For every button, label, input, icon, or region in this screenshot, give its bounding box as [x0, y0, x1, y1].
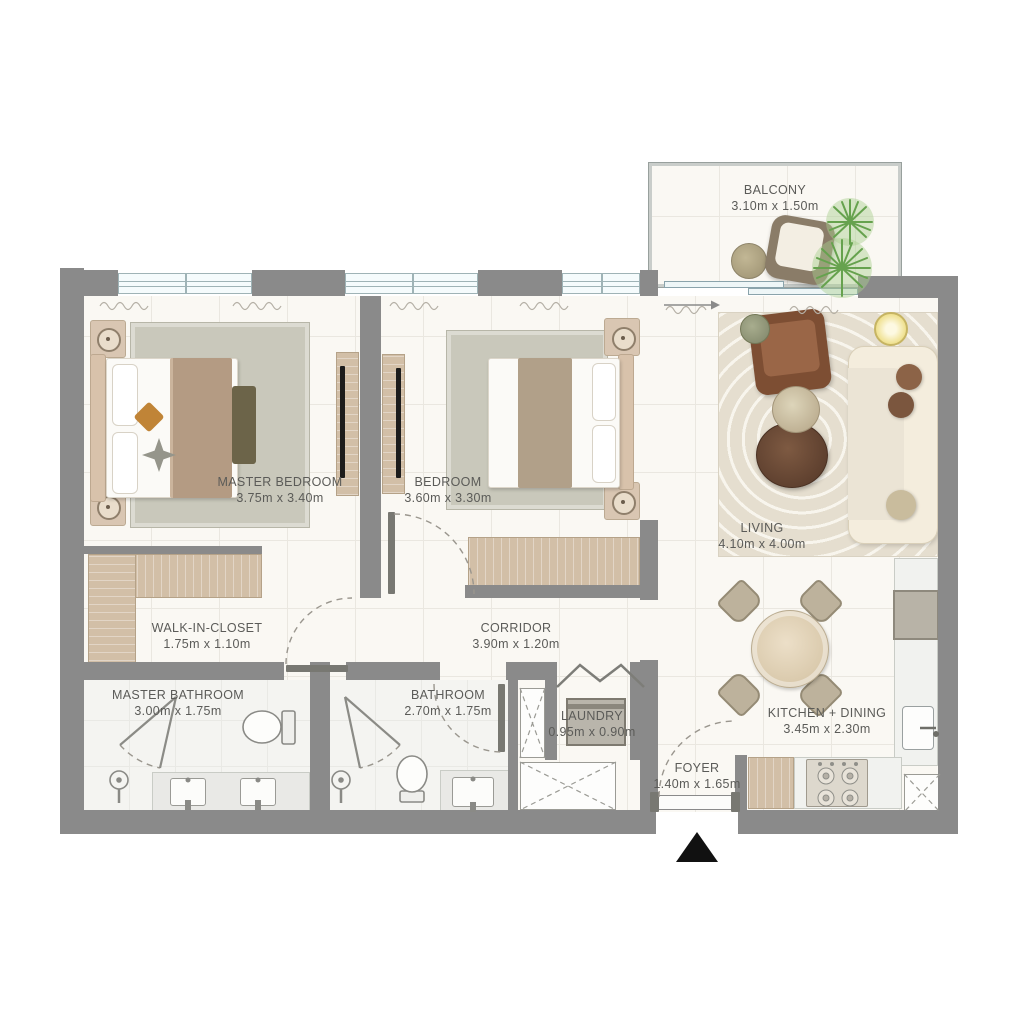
wall	[858, 276, 958, 298]
sink	[170, 778, 206, 806]
room-name: LIVING	[718, 520, 805, 536]
room-dims: 0.95m x 0.90m	[548, 724, 635, 740]
door-leaf	[498, 684, 505, 752]
room-dims: 2.70m x 1.75m	[404, 703, 491, 719]
wall	[60, 268, 84, 834]
wall	[378, 662, 440, 680]
room-name: MASTER BATHROOM	[112, 687, 244, 703]
label-corridor: CORRIDOR 3.90m x 1.20m	[472, 620, 559, 652]
label-foyer: FOYER 1.40m x 1.65m	[653, 760, 740, 792]
wall	[508, 680, 518, 812]
room-dims: 3.75m x 3.40m	[217, 490, 342, 506]
balcony-sliding-door	[748, 288, 858, 295]
dining-table	[751, 610, 829, 688]
closet-shelf-vertical	[88, 554, 136, 678]
master-bed-headboard	[90, 354, 106, 502]
wall	[252, 270, 345, 296]
pillow	[592, 425, 616, 483]
pillow	[112, 432, 138, 494]
tv-icon	[396, 368, 401, 478]
room-name: MASTER BEDROOM	[217, 474, 342, 490]
door-leaf	[388, 512, 395, 594]
room-name: BATHROOM	[404, 687, 491, 703]
room-name: KITCHEN + DINING	[768, 705, 886, 721]
floor-plan: BALCONY 3.10m x 1.50m MASTER BEDROOM 3.7…	[0, 0, 1024, 1024]
sofa-pillow	[888, 392, 914, 418]
label-balcony: BALCONY 3.10m x 1.50m	[731, 182, 818, 214]
room-dims: 3.00m x 1.75m	[112, 703, 244, 719]
bed-headboard	[618, 354, 634, 490]
door-post	[650, 792, 659, 812]
wall	[465, 585, 655, 598]
coffee-table-marble	[772, 386, 820, 433]
wall	[84, 546, 262, 554]
sofa-pillow	[886, 490, 916, 520]
label-kitchen-dining: KITCHEN + DINING 3.45m x 2.30m	[768, 705, 886, 737]
room-name: BEDROOM	[404, 474, 491, 490]
door-post	[731, 792, 740, 812]
duct-shaft	[520, 688, 545, 758]
wall	[506, 662, 546, 680]
sink	[452, 777, 494, 807]
wall	[360, 296, 381, 598]
wall	[640, 520, 658, 600]
room-name: CORRIDOR	[472, 620, 559, 636]
bed-blanket	[518, 358, 572, 488]
lamp-icon	[97, 328, 121, 352]
wall	[938, 288, 958, 834]
wall	[640, 270, 658, 296]
balcony-chair	[763, 213, 837, 287]
tv-icon	[340, 366, 345, 478]
nightstand	[604, 318, 640, 356]
entrance-arrow	[676, 832, 718, 862]
door-leaf	[286, 665, 348, 672]
wall	[60, 270, 118, 296]
foot-throw	[232, 386, 256, 464]
window	[345, 273, 478, 294]
room-name: WALK-IN-CLOSET	[152, 620, 263, 636]
label-master-bedroom: MASTER BEDROOM 3.75m x 3.40m	[217, 474, 342, 506]
lamp-icon	[612, 491, 636, 515]
side-table	[740, 314, 770, 344]
room-name: BALCONY	[731, 182, 818, 198]
room-dims: 3.60m x 3.30m	[404, 490, 491, 506]
label-bathroom: BATHROOM 2.70m x 1.75m	[404, 687, 491, 719]
sink	[240, 778, 276, 806]
balcony-chair-seat	[774, 221, 825, 272]
window	[118, 273, 252, 294]
tv-console	[382, 354, 405, 494]
nightstand	[90, 320, 126, 358]
wall	[478, 270, 562, 296]
duct-shaft	[904, 774, 940, 812]
wall	[310, 662, 330, 812]
balcony-table	[731, 243, 767, 279]
room-dims: 4.10m x 4.00m	[718, 536, 805, 552]
label-master-bathroom: MASTER BATHROOM 3.00m x 1.75m	[112, 687, 244, 719]
wall	[84, 662, 284, 680]
window	[562, 273, 640, 294]
room-dims: 3.90m x 1.20m	[472, 636, 559, 652]
floor-lamp	[874, 312, 908, 346]
entrance-door	[658, 795, 734, 810]
room-name: LAUNDRY	[548, 708, 635, 724]
fridge	[893, 590, 939, 640]
wardrobe	[468, 537, 640, 587]
wall	[738, 810, 958, 834]
room-dims: 3.10m x 1.50m	[731, 198, 818, 214]
room-name: FOYER	[653, 760, 740, 776]
label-living: LIVING 4.10m x 4.00m	[718, 520, 805, 552]
label-laundry: LAUNDRY 0.95m x 0.90m	[548, 708, 635, 740]
kitchen-cabinet	[748, 757, 794, 809]
room-dims: 1.75m x 1.10m	[152, 636, 263, 652]
duct-shaft	[520, 762, 616, 810]
balcony-sliding-door	[664, 281, 784, 288]
sofa-pillow	[896, 364, 922, 390]
wall	[346, 662, 378, 680]
pillow	[592, 363, 616, 421]
lamp-icon	[612, 327, 636, 351]
wall	[60, 810, 656, 834]
stove	[806, 759, 868, 807]
label-bedroom: BEDROOM 3.60m x 3.30m	[404, 474, 491, 506]
room-dims: 1.40m x 1.65m	[653, 776, 740, 792]
room-dims: 3.45m x 2.30m	[768, 721, 886, 737]
kitchen-sink	[902, 706, 934, 750]
label-walk-in-closet: WALK-IN-CLOSET 1.75m x 1.10m	[152, 620, 263, 652]
